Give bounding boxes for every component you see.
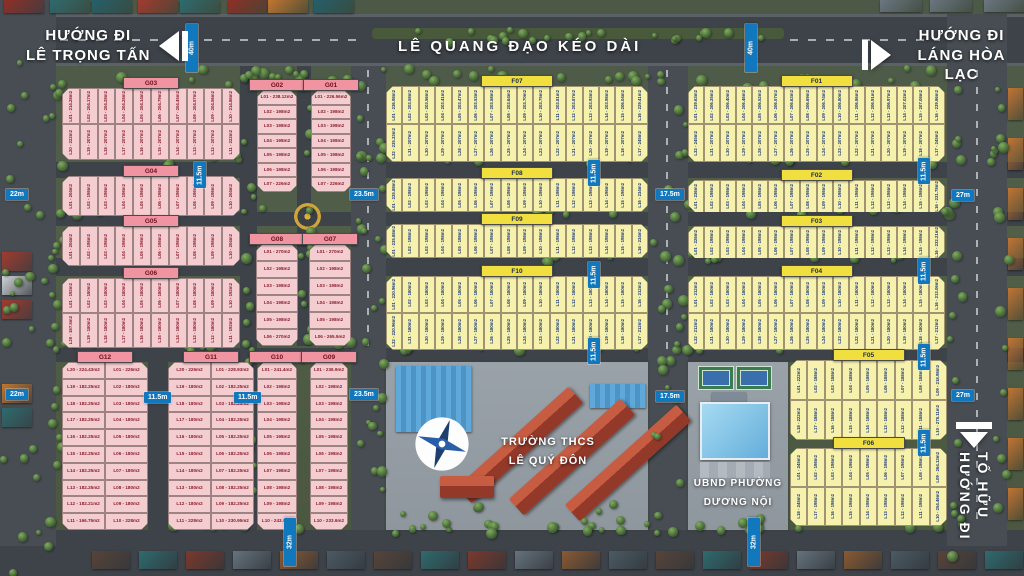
lot-cell[interactable]: L31 - 207m2 (402, 124, 418, 162)
lot-cell[interactable]: L03 - 198m2 (720, 180, 736, 213)
lot-cell[interactable]: L03 - 198m2 (825, 448, 842, 487)
lot-cell[interactable]: L01 - 226m2 (105, 362, 148, 379)
lot-cell[interactable]: L07 - 203.58m2 (484, 86, 500, 124)
lot-cell[interactable]: L16 - 213.06m2 (929, 276, 945, 313)
lot-cell[interactable]: L09 - 198m2 (517, 178, 533, 212)
lot-cell[interactable]: L24 - 180m2 (817, 313, 833, 350)
lot-cell[interactable]: L03 - 180m2 (105, 396, 148, 413)
lot-cell[interactable]: L23 - 207m2 (533, 124, 549, 162)
lot-cell[interactable]: L17 - 180m2 (168, 412, 211, 429)
lot-cell[interactable]: L18 - 182.25m2 (62, 396, 105, 413)
lot-cell[interactable]: L16 - 182.25m2 (62, 429, 105, 446)
lot-cell[interactable]: L20 - 187.5m2 (62, 313, 80, 348)
lot-cell[interactable]: L19 - 180m2 (168, 379, 211, 396)
lot-cell[interactable]: L05 - 188m2 (860, 360, 877, 400)
lot-cell[interactable]: L05 - 198m2 (752, 180, 768, 213)
lot-cell[interactable]: L07 - 226m2 (311, 177, 351, 192)
lot-cell[interactable]: L08 - 198m2 (501, 224, 517, 258)
lot-cell[interactable]: L02 - 198m2 (257, 379, 297, 396)
lot-cell[interactable]: L09 - 182.25m2 (211, 496, 254, 513)
lot-cell[interactable]: L12 - 198m2 (895, 487, 912, 526)
lot-cell[interactable]: L02 - 198m2 (402, 224, 418, 258)
lot-cell[interactable]: L01 - 204m2 (62, 176, 80, 216)
lot-cell[interactable]: L02 - 180m2 (402, 276, 418, 313)
lot-cell[interactable]: L03 - 198m2 (98, 226, 116, 266)
lot-cell[interactable]: L27 - 207m2 (468, 124, 484, 162)
lot-cell[interactable]: L14 - 203.98m2 (599, 86, 615, 124)
lot-cell[interactable]: L16 - 180m2 (133, 313, 151, 348)
lot-cell[interactable]: L15 - 188m2 (842, 400, 859, 440)
lot-cell[interactable]: L02 - 203.58m2 (402, 86, 418, 124)
lot-cell[interactable]: L15 - 207m2 (151, 124, 169, 160)
lot-cell[interactable]: L01 - 222m2 (790, 360, 807, 400)
lot-cell[interactable]: L15 - 198m2 (842, 487, 859, 526)
lot-cell[interactable]: L06 - 198m2 (768, 226, 784, 259)
lot-cell[interactable]: L04 - 204.28m2 (115, 88, 133, 124)
lot-cell[interactable]: L25 - 207m2 (501, 124, 517, 162)
lot-cell[interactable]: L05 - 198m2 (309, 312, 351, 329)
lot-cell[interactable]: L09 - 218.98m2 (930, 360, 947, 400)
lot-cell[interactable]: L09 - 206.74m2 (817, 86, 833, 124)
lot-cell[interactable]: L09 - 180m2 (517, 276, 533, 313)
lot-cell[interactable]: L07 - 204.45m2 (169, 88, 187, 124)
lot-cell[interactable]: L03 - 198m2 (309, 278, 351, 295)
lot-cell[interactable]: L20 - 224.43m2 (62, 362, 105, 379)
lot-cell[interactable]: L06 - 198m2 (257, 446, 297, 463)
lot-cell[interactable]: L03 - 198m2 (311, 119, 351, 134)
lot-cell[interactable]: L07 - 198m2 (484, 224, 500, 258)
lot-cell[interactable]: L06 - 265.5m2 (309, 329, 351, 346)
lot-cell[interactable]: L10 - 228m2 (105, 513, 148, 530)
lot-cell[interactable]: L06 - 198m2 (468, 224, 484, 258)
lot-cell[interactable]: L15 - 198m2 (913, 226, 929, 259)
lot-cell[interactable]: L07 - 180m2 (784, 276, 800, 313)
lot-cell[interactable]: L24 - 207m2 (517, 124, 533, 162)
lot-cell[interactable]: L02 - 180m2 (704, 276, 720, 313)
lot-cell[interactable]: L13 - 188m2 (877, 400, 894, 440)
lot-cell[interactable]: L11 - 203.81m2 (550, 86, 566, 124)
lot-cell[interactable]: L15 - 180m2 (151, 313, 169, 348)
lot-cell[interactable]: L13 - 198m2 (583, 224, 599, 258)
lot-cell[interactable]: L08 - 180m2 (105, 480, 148, 497)
lot-cell[interactable]: L01 - 212m2 (688, 276, 704, 313)
lot-cell[interactable]: L28 - 180m2 (752, 313, 768, 350)
lot-cell[interactable]: L02 - 198m2 (807, 448, 824, 487)
lot-cell[interactable]: L06 - 204.79m2 (151, 88, 169, 124)
lot-cell[interactable]: L12 - 198m2 (566, 178, 582, 212)
lot-cell[interactable]: L03 - 204.28m2 (98, 88, 116, 124)
lot-cell[interactable]: L08 - 198m2 (310, 480, 348, 497)
lot-cell[interactable]: L22 - 180m2 (550, 313, 566, 350)
lot-cell[interactable]: L05 - 180m2 (105, 429, 148, 446)
lot-cell[interactable]: L04 - 198m2 (115, 226, 133, 266)
lot-cell[interactable]: L07 - 180m2 (169, 278, 187, 313)
lot-cell[interactable]: L04 - 198m2 (311, 134, 351, 149)
lot-cell[interactable]: L02 - 198m2 (80, 226, 98, 266)
lot-cell[interactable]: L15 - 198m2 (615, 224, 631, 258)
lot-cell[interactable]: L01 - 235.88m2 (386, 224, 402, 258)
lot-cell[interactable]: L01 - 239.63m2 (688, 86, 704, 124)
lot-cell[interactable]: L08 - 180m2 (501, 276, 517, 313)
lot-cell[interactable]: L04 - 180m2 (115, 278, 133, 313)
lot-cell[interactable]: L06 - 180m2 (105, 446, 148, 463)
lot-cell[interactable]: L09 - 198m2 (817, 226, 833, 259)
lot-cell[interactable]: L07 - 180m2 (105, 463, 148, 480)
lot-cell[interactable]: L26 - 207m2 (784, 124, 800, 162)
lot-cell[interactable]: L17 - 245m2 (929, 124, 945, 162)
lot-cell[interactable]: L01 - 214.28m2 (62, 88, 80, 124)
lot-cell[interactable]: L15 - 182.25m2 (62, 446, 105, 463)
lot-cell[interactable]: L11 - 198m2 (550, 224, 566, 258)
lot-cell[interactable]: L10 - 192m2 (222, 278, 240, 313)
lot-cell[interactable]: L16 - 198m2 (825, 487, 842, 526)
lot-cell[interactable]: L06 - 203.53m2 (468, 86, 484, 124)
lot-cell[interactable]: L11 - 180m2 (550, 276, 566, 313)
lot-cell[interactable]: L01 - 204m2 (62, 226, 80, 266)
lot-cell[interactable]: L18 - 207m2 (98, 124, 116, 160)
lot-cell[interactable]: L03 - 198m2 (98, 176, 116, 216)
lot-cell[interactable]: L05 - 182.25m2 (211, 429, 254, 446)
lot-cell[interactable]: L04 - 182.25m2 (211, 412, 254, 429)
lot-cell[interactable]: L11 - 192m2 (222, 313, 240, 348)
lot-cell[interactable]: L32 - 220.96m2 (386, 313, 402, 350)
lot-cell[interactable]: L32 - 245m2 (688, 124, 704, 162)
lot-cell[interactable]: L17 - 188m2 (807, 400, 824, 440)
lot-cell[interactable]: L02 - 198m2 (309, 261, 351, 278)
lot-cell[interactable]: L03 - 198m2 (257, 396, 297, 413)
lot-cell[interactable]: L06 - 198m2 (468, 178, 484, 212)
lot-cell[interactable]: L05 - 180m2 (133, 278, 151, 313)
lot-cell[interactable]: L04 - 198m2 (435, 224, 451, 258)
lot-cell[interactable]: L05 - 198m2 (452, 178, 468, 212)
lot-cell[interactable]: L05 - 198m2 (860, 448, 877, 487)
lot-cell[interactable]: L17 - 180m2 (115, 313, 133, 348)
lot-cell[interactable]: L07 - 198m2 (784, 180, 800, 213)
lot-cell[interactable]: L09 - 180m2 (204, 278, 222, 313)
lot-cell[interactable]: L03 - 198m2 (310, 396, 348, 413)
lot-cell[interactable]: L17 - 207m2 (115, 124, 133, 160)
lot-cell[interactable]: L02 - 204.17m2 (80, 88, 98, 124)
lot-cell[interactable]: L02 - 198m2 (311, 105, 351, 120)
lot-cell[interactable]: L18 - 207m2 (615, 124, 631, 162)
lot-cell[interactable]: L07 - 198m2 (895, 448, 912, 487)
lot-cell[interactable]: L02 - 180m2 (80, 278, 98, 313)
lot-cell[interactable]: L07 - 198m2 (169, 176, 187, 216)
lot-cell[interactable]: L27 - 207m2 (768, 124, 784, 162)
lot-cell[interactable]: L06 - 188m2 (877, 360, 894, 400)
lot-cell[interactable]: L16 - 232.21m2 (929, 226, 945, 259)
lot-cell[interactable]: L13 - 203.93m2 (583, 86, 599, 124)
lot-cell[interactable]: L08 - 198m2 (257, 480, 297, 497)
lot-cell[interactable]: L14 - 198m2 (860, 487, 877, 526)
lot-cell[interactable]: L02 - 198m2 (256, 261, 298, 278)
lot-cell[interactable]: L14 - 188m2 (860, 400, 877, 440)
lot-cell[interactable]: L10 - 204m2 (222, 226, 240, 266)
lot-cell[interactable]: L11 - 166.75m2 (62, 513, 105, 530)
lot-cell[interactable]: L18 - 180m2 (615, 313, 631, 350)
lot-cell[interactable]: L09 - 198m2 (204, 176, 222, 216)
lot-cell[interactable]: L01 - 236.9m2 (310, 362, 348, 379)
lot-cell[interactable]: L04 - 198m2 (310, 412, 348, 429)
lot-cell[interactable]: L05 - 198m2 (133, 176, 151, 216)
lot-cell[interactable]: L20 - 226m2 (168, 362, 211, 379)
lot-cell[interactable]: L08 - 182.25m2 (211, 480, 254, 497)
lot-cell[interactable]: L03 - 180m2 (720, 276, 736, 313)
lot-cell[interactable]: L12 - 188m2 (895, 400, 912, 440)
lot-cell[interactable]: L09 - 198m2 (204, 226, 222, 266)
lot-cell[interactable]: L21 - 207m2 (865, 124, 881, 162)
lot-cell[interactable]: L29 - 180m2 (736, 313, 752, 350)
lot-cell[interactable]: L27 - 180m2 (768, 313, 784, 350)
lot-cell[interactable]: L08 - 204.57m2 (187, 88, 205, 124)
lot-cell[interactable]: L14 - 198m2 (599, 224, 615, 258)
lot-cell[interactable]: L21 - 207m2 (566, 124, 582, 162)
lot-cell[interactable]: L05 - 180m2 (452, 276, 468, 313)
lot-cell[interactable]: L06 - 198m2 (151, 226, 169, 266)
lot-cell[interactable]: L13 - 198m2 (877, 487, 894, 526)
lot-cell[interactable]: L12 - 206.91m2 (865, 86, 881, 124)
lot-cell[interactable]: L21 - 180m2 (865, 313, 881, 350)
lot-cell[interactable]: L08 - 180m2 (800, 276, 816, 313)
lot-cell[interactable]: L05 - 198m2 (311, 148, 351, 163)
lot-cell[interactable]: L11 - 198m2 (550, 178, 566, 212)
lot-cell[interactable]: L07 - 198m2 (784, 226, 800, 259)
lot-cell[interactable]: L10 - 214.86m2 (222, 88, 240, 124)
lot-cell[interactable]: L02 - 198m2 (257, 105, 297, 120)
lot-cell[interactable]: L18 - 180m2 (98, 313, 116, 348)
lot-cell[interactable]: L16 - 188m2 (825, 400, 842, 440)
lot-cell[interactable]: L12 - 198m2 (865, 180, 881, 213)
lot-cell[interactable]: L05 - 204.14m2 (133, 88, 151, 124)
lot-cell[interactable]: L05 - 198m2 (256, 312, 298, 329)
lot-cell[interactable]: L19 - 182.25m2 (62, 379, 105, 396)
lot-cell[interactable]: L23 - 207m2 (833, 124, 849, 162)
lot-cell[interactable]: L01 - 235.88m2 (386, 178, 402, 212)
lot-cell[interactable]: L01 - 270m2 (256, 244, 298, 261)
lot-cell[interactable]: L11 - 180m2 (849, 276, 865, 313)
lot-cell[interactable]: L11 - 198m2 (849, 226, 865, 259)
lot-cell[interactable]: L07 - 182.25m2 (211, 463, 254, 480)
lot-cell[interactable]: L22 - 207m2 (849, 124, 865, 162)
lot-cell[interactable]: L12 - 180m2 (566, 276, 582, 313)
lot-cell[interactable]: L05 - 198m2 (752, 226, 768, 259)
lot-cell[interactable]: L05 - 198m2 (257, 148, 297, 163)
lot-cell[interactable]: L05 - 203.47m2 (452, 86, 468, 124)
lot-cell[interactable]: L08 - 180m2 (187, 278, 205, 313)
lot-cell[interactable]: L07 - 188m2 (895, 360, 912, 400)
lot-cell[interactable]: L21 - 180m2 (566, 313, 582, 350)
lot-cell[interactable]: L14 - 207m2 (169, 124, 187, 160)
lot-cell[interactable]: L07 - 198m2 (257, 463, 297, 480)
lot-cell[interactable]: L13 - 198m2 (881, 226, 897, 259)
lot-cell[interactable]: L10 - 230.95m2 (211, 513, 254, 530)
lot-cell[interactable]: L18 - 180m2 (168, 396, 211, 413)
lot-cell[interactable]: L10 - 203.75m2 (533, 86, 549, 124)
lot-cell[interactable]: L02 - 198m2 (704, 226, 720, 259)
lot-cell[interactable]: L09 - 264.13m2 (930, 448, 947, 487)
lot-cell[interactable]: L03 - 180m2 (419, 276, 435, 313)
lot-cell[interactable]: L16 - 180m2 (168, 429, 211, 446)
lot-cell[interactable]: L13 - 180m2 (168, 480, 211, 497)
lot-cell[interactable]: L06 - 270m2 (256, 329, 298, 346)
lot-cell[interactable]: L29 - 207m2 (435, 124, 451, 162)
lot-cell[interactable]: L32 - 235.33m2 (386, 124, 402, 162)
lot-cell[interactable]: L20 - 207m2 (583, 124, 599, 162)
lot-cell[interactable]: L26 - 207m2 (484, 124, 500, 162)
lot-cell[interactable]: L01 - 192m2 (62, 278, 80, 313)
lot-cell[interactable]: L17 - 198m2 (807, 487, 824, 526)
lot-cell[interactable]: L19 - 180m2 (599, 313, 615, 350)
lot-cell[interactable]: L09 - 198m2 (257, 496, 297, 513)
lot-cell[interactable]: L15 - 198m2 (615, 178, 631, 212)
lot-cell[interactable]: L15 - 207.08m2 (913, 86, 929, 124)
lot-cell[interactable]: L22 - 207m2 (550, 124, 566, 162)
lot-cell[interactable]: L04 - 198m2 (256, 295, 298, 312)
lot-cell[interactable]: L14 - 207.02m2 (897, 86, 913, 124)
lot-cell[interactable]: L10 - 198m2 (533, 178, 549, 212)
lot-cell[interactable]: L07 - 198m2 (310, 463, 348, 480)
lot-cell[interactable]: L16 - 212m2 (632, 276, 648, 313)
lot-cell[interactable]: L12 - 198m2 (865, 226, 881, 259)
lot-cell[interactable]: L06 - 198m2 (877, 448, 894, 487)
lot-cell[interactable]: L11 - 222m2 (222, 124, 240, 160)
lot-cell[interactable]: L06 - 180m2 (151, 278, 169, 313)
lot-cell[interactable]: L02 - 198m2 (402, 178, 418, 212)
lot-cell[interactable]: L04 - 180m2 (435, 276, 451, 313)
lot-cell[interactable]: L02 - 206.35m2 (704, 86, 720, 124)
lot-cell[interactable]: L04 - 188m2 (842, 360, 859, 400)
lot-cell[interactable]: L11 - 198m2 (849, 180, 865, 213)
lot-cell[interactable]: L08 - 198m2 (187, 226, 205, 266)
lot-cell[interactable]: L29 - 207m2 (736, 124, 752, 162)
lot-cell[interactable]: L15 - 180m2 (615, 276, 631, 313)
lot-cell[interactable]: L31 - 207m2 (704, 124, 720, 162)
lot-cell[interactable]: L18 - 207m2 (913, 124, 929, 162)
lot-cell[interactable]: L28 - 207m2 (752, 124, 768, 162)
lot-cell[interactable]: L10 - 198m2 (833, 180, 849, 213)
lot-cell[interactable]: L04 - 203.41m2 (435, 86, 451, 124)
lot-cell[interactable]: L09 - 180m2 (817, 276, 833, 313)
lot-cell[interactable]: L03 - 198m2 (419, 224, 435, 258)
lot-cell[interactable]: L06 - 198m2 (311, 163, 351, 178)
lot-cell[interactable]: L16 - 234m2 (632, 224, 648, 258)
lot-cell[interactable]: L06 - 198m2 (257, 163, 297, 178)
lot-cell[interactable]: L09 - 198m2 (517, 224, 533, 258)
lot-cell[interactable]: L23 - 180m2 (533, 313, 549, 350)
lot-cell[interactable]: L19 - 207m2 (80, 124, 98, 160)
lot-cell[interactable]: L07 - 198m2 (169, 226, 187, 266)
lot-cell[interactable]: L16 - 207m2 (133, 124, 151, 160)
lot-cell[interactable]: L22 - 180m2 (849, 313, 865, 350)
lot-cell[interactable]: L19 - 180m2 (897, 313, 913, 350)
lot-cell[interactable]: L04 - 198m2 (842, 448, 859, 487)
lot-cell[interactable]: L19 - 207m2 (599, 124, 615, 162)
lot-cell[interactable]: L03 - 206.40m2 (720, 86, 736, 124)
lot-cell[interactable]: L04 - 206.46m2 (736, 86, 752, 124)
lot-cell[interactable]: L13 - 206.97m2 (881, 86, 897, 124)
lot-cell[interactable]: L31 - 180m2 (402, 313, 418, 350)
lot-cell[interactable]: L13 - 180m2 (881, 276, 897, 313)
lot-cell[interactable]: L17 - 245m2 (632, 124, 648, 162)
lot-cell[interactable]: L12 - 198m2 (566, 224, 582, 258)
lot-cell[interactable]: L02 - 198m2 (310, 379, 348, 396)
lot-cell[interactable]: L12 - 180m2 (204, 313, 222, 348)
lot-cell[interactable]: L17 - 212m2 (632, 313, 648, 350)
lot-cell[interactable]: L04 - 198m2 (115, 176, 133, 216)
lot-cell[interactable]: L11 - 206.86m2 (849, 86, 865, 124)
lot-cell[interactable]: L12 - 182.21m2 (62, 496, 105, 513)
lot-cell[interactable]: L23 - 180m2 (833, 313, 849, 350)
lot-cell[interactable]: L10 - 206.80m2 (833, 86, 849, 124)
lot-cell[interactable]: L18 - 222m2 (790, 400, 807, 440)
lot-cell[interactable]: L04 - 198m2 (257, 412, 297, 429)
lot-cell[interactable]: L14 - 198m2 (897, 180, 913, 213)
lot-cell[interactable]: L10 - 198m2 (533, 224, 549, 258)
lot-cell[interactable]: L26 - 180m2 (484, 313, 500, 350)
lot-cell[interactable]: L09 - 203.70m2 (517, 86, 533, 124)
lot-cell[interactable]: L24 - 180m2 (517, 313, 533, 350)
lot-cell[interactable]: L05 - 198m2 (133, 226, 151, 266)
lot-cell[interactable]: L25 - 207m2 (800, 124, 816, 162)
lot-cell[interactable]: L20 - 207m2 (881, 124, 897, 162)
lot-cell[interactable]: L09 - 204.56m2 (204, 88, 222, 124)
lot-cell[interactable]: L02 - 188m2 (807, 360, 824, 400)
lot-cell[interactable]: L30 - 207m2 (419, 124, 435, 162)
lot-cell[interactable]: L08 - 198m2 (800, 226, 816, 259)
lot-cell[interactable]: L05 - 198m2 (257, 429, 297, 446)
lot-cell[interactable]: L03 - 198m2 (257, 119, 297, 134)
lot-cell[interactable]: L13 - 180m2 (187, 313, 205, 348)
lot-cell[interactable]: L04 - 198m2 (736, 226, 752, 259)
lot-cell[interactable]: L06 - 198m2 (768, 180, 784, 213)
lot-cell[interactable]: L17 - 212m2 (929, 313, 945, 350)
lot-cell[interactable]: L08 - 206.69m2 (800, 86, 816, 124)
lot-cell[interactable]: L04 - 198m2 (435, 178, 451, 212)
lot-cell[interactable]: L04 - 198m2 (257, 134, 297, 149)
lot-cell[interactable]: L03 - 180m2 (98, 278, 116, 313)
lot-cell[interactable]: L03 - 198m2 (720, 226, 736, 259)
lot-cell[interactable]: L04 - 180m2 (736, 276, 752, 313)
lot-cell[interactable]: L26 - 180m2 (784, 313, 800, 350)
lot-cell[interactable]: L16 - 234m2 (632, 178, 648, 212)
lot-cell[interactable]: L10 - 198m2 (833, 226, 849, 259)
lot-cell[interactable]: L19 - 180m2 (80, 313, 98, 348)
lot-cell[interactable]: L04 - 198m2 (736, 180, 752, 213)
lot-cell[interactable]: L10 - 180m2 (833, 276, 849, 313)
lot-cell[interactable]: L14 - 180m2 (897, 276, 913, 313)
lot-cell[interactable]: L24 - 207m2 (817, 124, 833, 162)
lot-cell[interactable]: L02 - 180m2 (105, 379, 148, 396)
lot-cell[interactable]: L12 - 180m2 (168, 496, 211, 513)
lot-cell[interactable]: L28 - 207m2 (452, 124, 468, 162)
lot-cell[interactable]: L29 - 180m2 (435, 313, 451, 350)
lot-cell[interactable]: L20 - 222m2 (62, 124, 80, 160)
lot-cell[interactable]: L01 - 238.12m2 (257, 90, 297, 105)
lot-cell[interactable]: L08 - 203.64m2 (501, 86, 517, 124)
lot-cell[interactable]: L01 - 236.98m2 (386, 86, 402, 124)
lot-cell[interactable]: L17 - 182.25m2 (62, 412, 105, 429)
lot-cell[interactable]: L12 - 207m2 (204, 124, 222, 160)
lot-cell[interactable]: L13 - 207m2 (187, 124, 205, 160)
lot-cell[interactable]: L14 - 180m2 (168, 463, 211, 480)
lot-cell[interactable]: L04 - 180m2 (105, 412, 148, 429)
lot-cell[interactable]: L09 - 198m2 (817, 180, 833, 213)
lot-cell[interactable]: L03 - 203.56m2 (419, 86, 435, 124)
lot-cell[interactable]: L11 - 228m2 (168, 513, 211, 530)
lot-cell[interactable]: L16 - 239.86m2 (929, 86, 945, 124)
lot-cell[interactable]: L14 - 180m2 (599, 276, 615, 313)
lot-cell[interactable]: L01 - 241.4m2 (257, 362, 297, 379)
